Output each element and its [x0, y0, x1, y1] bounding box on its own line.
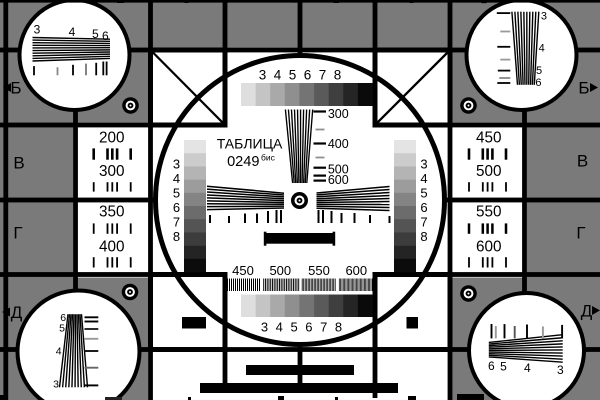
svg-text:500: 500 — [476, 163, 502, 180]
svg-text:5: 5 — [420, 186, 427, 201]
svg-text:400: 400 — [99, 239, 125, 256]
svg-text:450: 450 — [476, 130, 502, 147]
svg-text:550: 550 — [308, 263, 330, 278]
svg-text:4: 4 — [173, 171, 180, 186]
svg-text:4: 4 — [420, 171, 427, 186]
svg-text:5: 5 — [289, 68, 297, 83]
svg-text:6: 6 — [535, 77, 541, 89]
svg-text:4: 4 — [274, 68, 282, 83]
svg-text:8: 8 — [335, 319, 342, 334]
svg-text:Б: Б — [10, 79, 21, 98]
svg-text:600: 600 — [328, 173, 349, 187]
svg-text:Д: Д — [11, 303, 23, 322]
svg-text:3: 3 — [557, 363, 564, 377]
svg-text:8: 8 — [334, 68, 342, 83]
svg-text:400: 400 — [328, 137, 349, 151]
svg-text:4: 4 — [276, 319, 283, 334]
svg-text:600: 600 — [345, 263, 367, 278]
svg-text:8: 8 — [173, 229, 180, 244]
svg-text:5: 5 — [536, 65, 542, 77]
svg-text:600: 600 — [476, 239, 502, 256]
svg-text:3: 3 — [420, 157, 427, 172]
svg-text:6: 6 — [488, 359, 495, 373]
svg-text:3: 3 — [541, 11, 547, 23]
svg-text:3: 3 — [259, 68, 267, 83]
svg-text:7: 7 — [320, 319, 327, 334]
svg-text:В: В — [13, 154, 24, 173]
svg-text:550: 550 — [476, 204, 502, 221]
svg-text:300: 300 — [99, 163, 125, 180]
svg-text:300: 300 — [328, 107, 349, 121]
svg-text:4: 4 — [539, 43, 545, 55]
svg-text:4: 4 — [524, 361, 531, 375]
svg-text:8: 8 — [420, 229, 427, 244]
svg-text:5: 5 — [173, 186, 180, 201]
svg-text:Д: Д — [581, 302, 593, 321]
svg-text:3: 3 — [34, 23, 41, 37]
svg-text:Г: Г — [13, 224, 22, 243]
svg-text:Б: Б — [578, 79, 589, 98]
svg-text:200: 200 — [99, 130, 125, 147]
svg-text:6: 6 — [102, 29, 109, 43]
svg-text:500: 500 — [269, 263, 291, 278]
svg-text:3: 3 — [53, 378, 59, 390]
svg-text:6: 6 — [305, 319, 312, 334]
svg-text:ТАБЛИЦА: ТАБЛИЦА — [217, 135, 283, 151]
svg-text:4: 4 — [69, 25, 76, 39]
svg-text:450: 450 — [232, 263, 254, 278]
svg-text:0249: 0249 — [227, 154, 259, 170]
svg-text:5: 5 — [92, 27, 99, 41]
svg-text:5: 5 — [59, 323, 65, 335]
svg-text:7: 7 — [420, 215, 427, 230]
svg-text:7: 7 — [173, 215, 180, 230]
svg-text:В: В — [577, 151, 588, 170]
svg-text:5: 5 — [500, 360, 507, 374]
svg-text:4: 4 — [56, 346, 62, 358]
svg-text:7: 7 — [319, 68, 327, 83]
svg-text:3: 3 — [173, 157, 180, 172]
svg-text:350: 350 — [99, 204, 125, 221]
svg-text:бис: бис — [261, 152, 276, 162]
svg-text:6: 6 — [304, 68, 312, 83]
svg-text:6: 6 — [173, 200, 180, 215]
svg-text:3: 3 — [261, 319, 268, 334]
svg-text:Г: Г — [576, 224, 585, 243]
svg-text:5: 5 — [290, 319, 297, 334]
svg-text:6: 6 — [420, 200, 427, 215]
